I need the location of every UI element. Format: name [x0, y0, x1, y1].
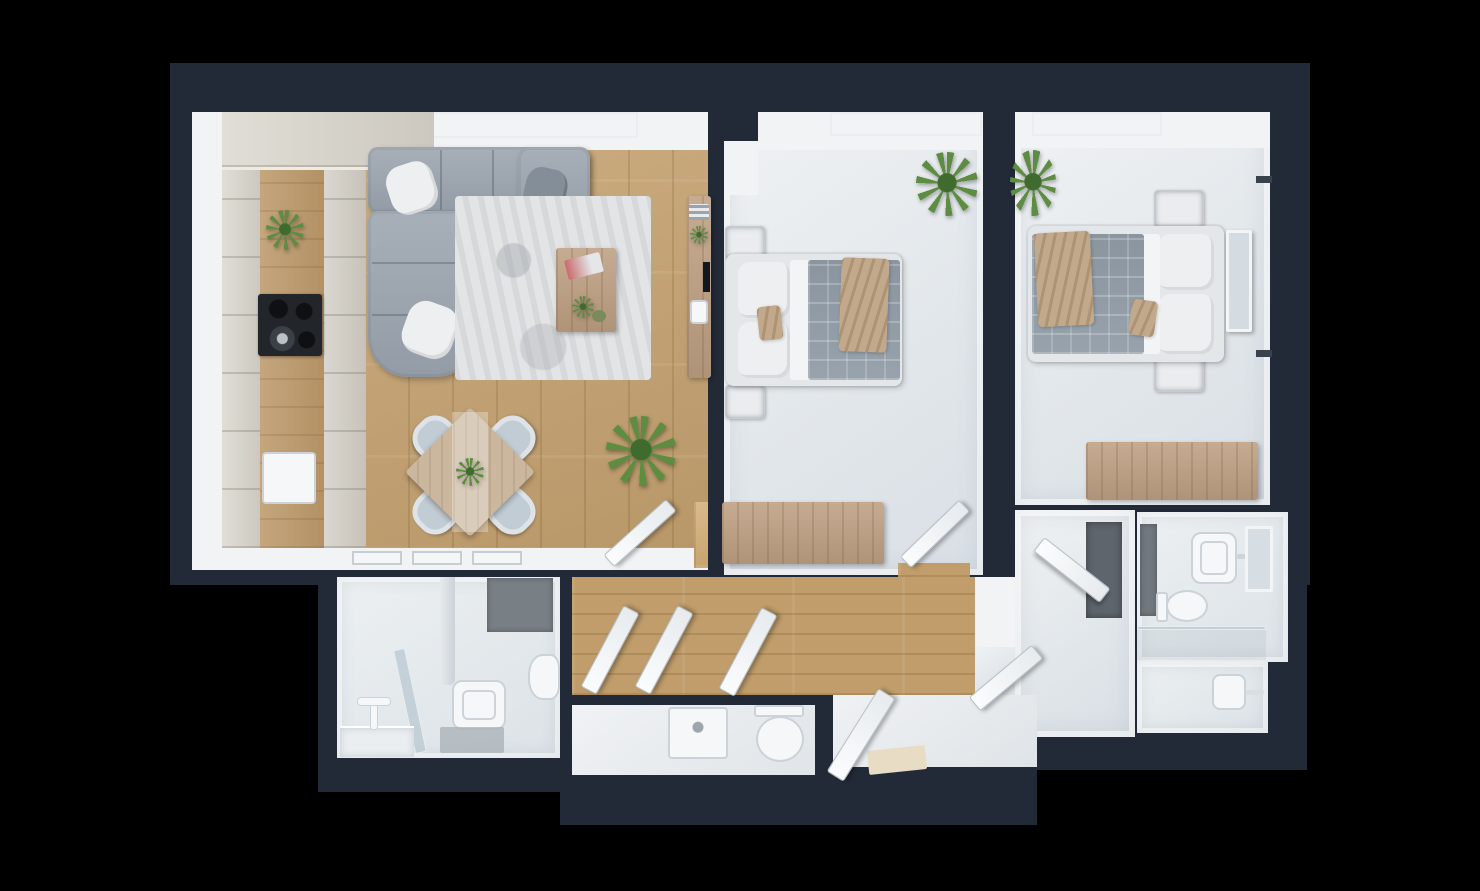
kitchen-cabinet-column-left	[222, 170, 260, 548]
bathroom-left-shower-tray	[340, 726, 414, 757]
bedroom2-window-band	[1032, 112, 1162, 136]
bathroom-right-sink-basin	[1200, 541, 1228, 575]
bathroom-right-towel-rail	[1246, 690, 1264, 695]
bedroom1-nightstand-bottom	[725, 385, 765, 419]
bedroom1-blanket-chest	[722, 502, 884, 564]
kitchen-cooktop	[258, 294, 322, 356]
bathroom-right-toilet-bowl	[1166, 590, 1208, 622]
bedroom1-accent-pillow	[756, 305, 783, 341]
bedroom1-plant	[916, 152, 978, 216]
bathroom-left-riser-pipe	[440, 577, 455, 685]
coffee-table-plant	[572, 296, 594, 318]
hallway-floor	[572, 577, 975, 695]
bedroom2-pillow-2	[1158, 294, 1214, 354]
sideboard-plant	[690, 226, 708, 244]
bathroom-left-towel-panel	[487, 578, 553, 632]
bathroom-left-sink-basin	[462, 690, 496, 720]
living-area-rug	[455, 196, 651, 380]
wc-toilet-bowl	[756, 716, 804, 762]
living-wall-face-bottom	[222, 548, 708, 570]
living-window-band	[420, 112, 638, 138]
bathroom-right-mirror	[1245, 526, 1273, 592]
bedroom1-wall-face-step	[724, 141, 758, 195]
bathroom-right-bidet	[1212, 674, 1246, 710]
floor-plan-canvas	[0, 0, 1480, 891]
bathroom-right-floor-lower	[1137, 662, 1268, 733]
bottom-wall-window-1	[352, 551, 402, 565]
living-door-threshold	[694, 502, 708, 568]
living-wall-face-left	[192, 112, 224, 570]
bedroom1-throw	[838, 257, 889, 353]
bedroom2-wall-handle-bottom	[1256, 350, 1272, 357]
bedroom2-accent-pillow	[1128, 298, 1159, 337]
bedroom2-plant	[1010, 150, 1056, 216]
bedroom2-dresser	[1086, 442, 1258, 500]
dining-table-centerpiece	[456, 458, 484, 486]
bathroom-left-bath-mat	[440, 727, 504, 753]
bathroom-left-sink	[452, 680, 506, 730]
bedroom2-wall-handle-top	[1256, 176, 1272, 183]
kitchen-counter-plant	[266, 210, 304, 250]
bedroom2-throw	[1034, 231, 1095, 328]
sideboard-decor	[690, 300, 708, 324]
bedroom2-pillow-1	[1158, 234, 1214, 290]
hallway-wall-face-right	[975, 577, 1015, 647]
living-palm-plant	[606, 416, 676, 486]
bathroom-right-shower-floor	[1137, 630, 1266, 660]
bedroom1-wall-notch	[708, 63, 758, 141]
kitchen-cabinet-column-right	[324, 170, 366, 548]
wc-washing-machine	[668, 707, 728, 759]
bedroom2-nightstand-top	[1154, 190, 1204, 228]
sideboard-books	[689, 204, 709, 220]
kitchen-appliance-front	[262, 452, 316, 504]
bathroom-right-sink	[1191, 532, 1237, 584]
bedroom1-window-band	[830, 112, 982, 136]
bottom-wall-window-2	[412, 551, 462, 565]
coffee-table-decor	[592, 310, 606, 322]
bedroom2-mirror	[1226, 230, 1252, 332]
bathroom-left-toilet	[528, 654, 560, 700]
bottom-wall-window-3	[472, 551, 522, 565]
sofa-seam-1	[440, 150, 442, 210]
bathroom-right-accent-tile	[1140, 524, 1157, 616]
bedroom1-sheet-fold	[790, 260, 810, 380]
tv-panel	[703, 262, 710, 292]
wardrobe-dark-front	[1086, 522, 1122, 618]
bathroom-left-shower-handle-bar	[357, 697, 391, 706]
